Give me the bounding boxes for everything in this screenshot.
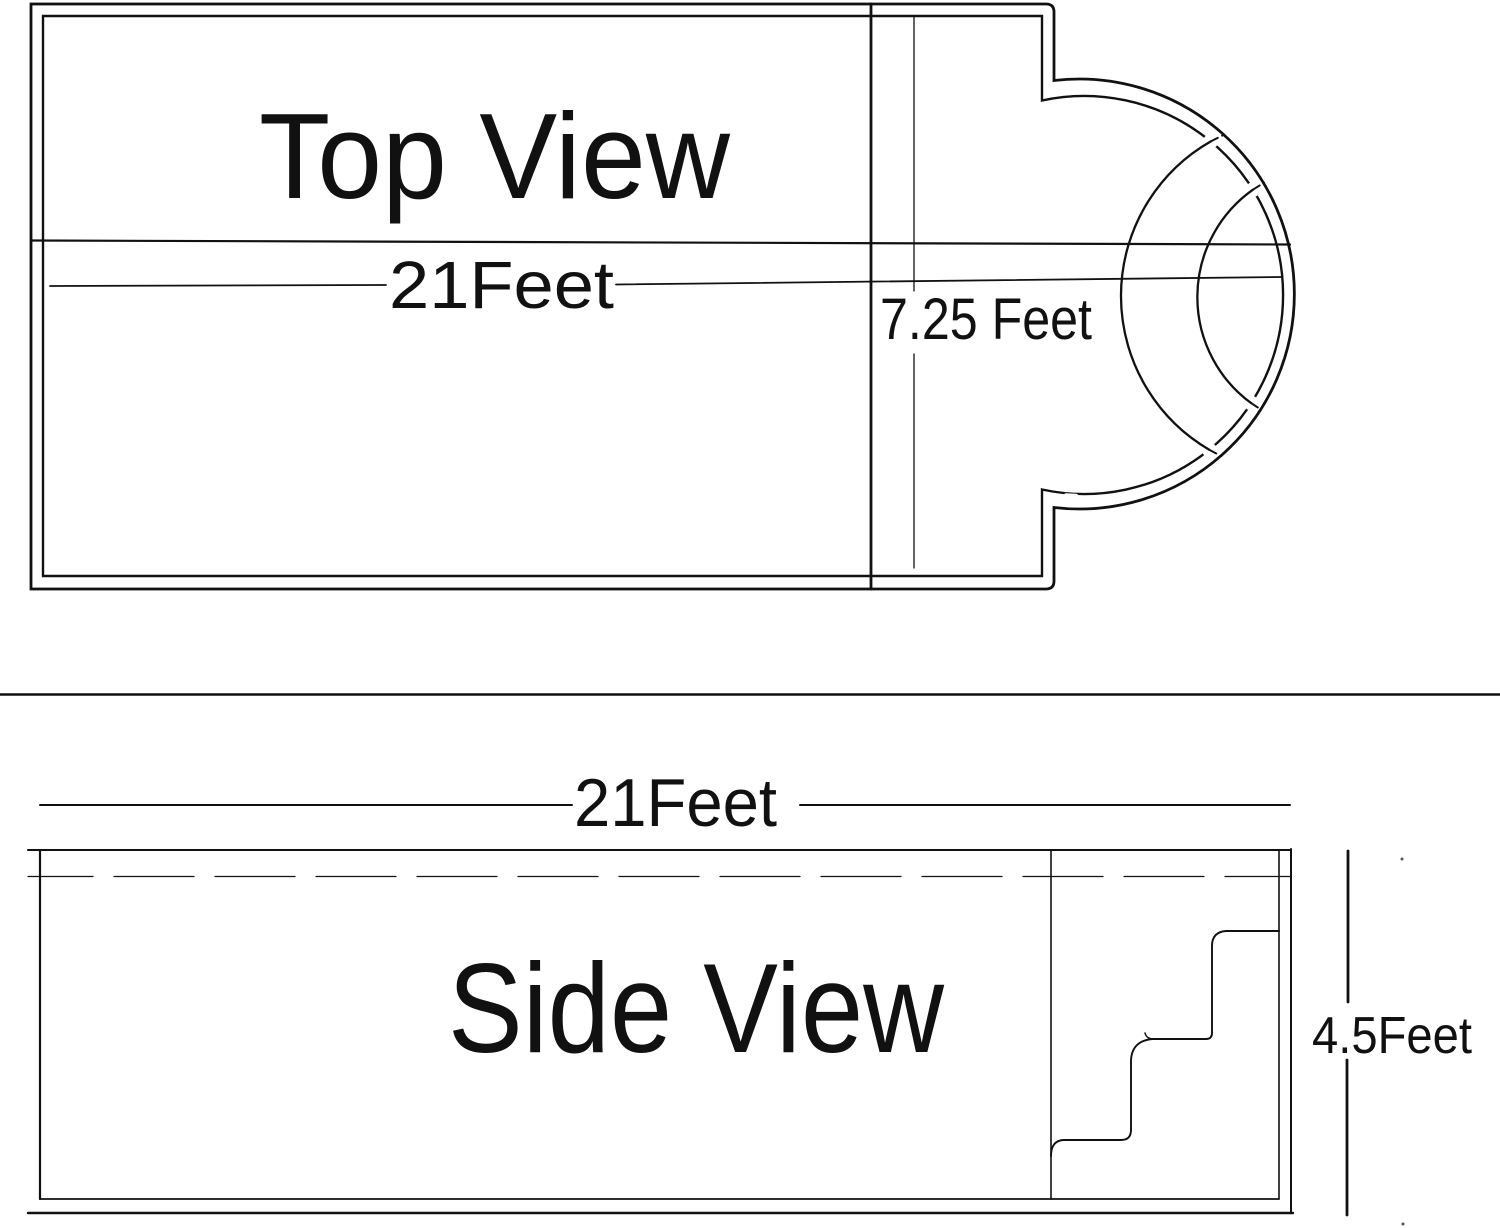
svg-text:21Feet: 21Feet [574, 765, 777, 841]
svg-text:Side View: Side View [448, 937, 945, 1079]
svg-text:7.25 Feet: 7.25 Feet [880, 287, 1092, 352]
svg-text:4.5Feet: 4.5Feet [1312, 1007, 1472, 1065]
svg-text:21Feet: 21Feet [389, 248, 614, 323]
svg-text:Top View: Top View [259, 88, 731, 224]
